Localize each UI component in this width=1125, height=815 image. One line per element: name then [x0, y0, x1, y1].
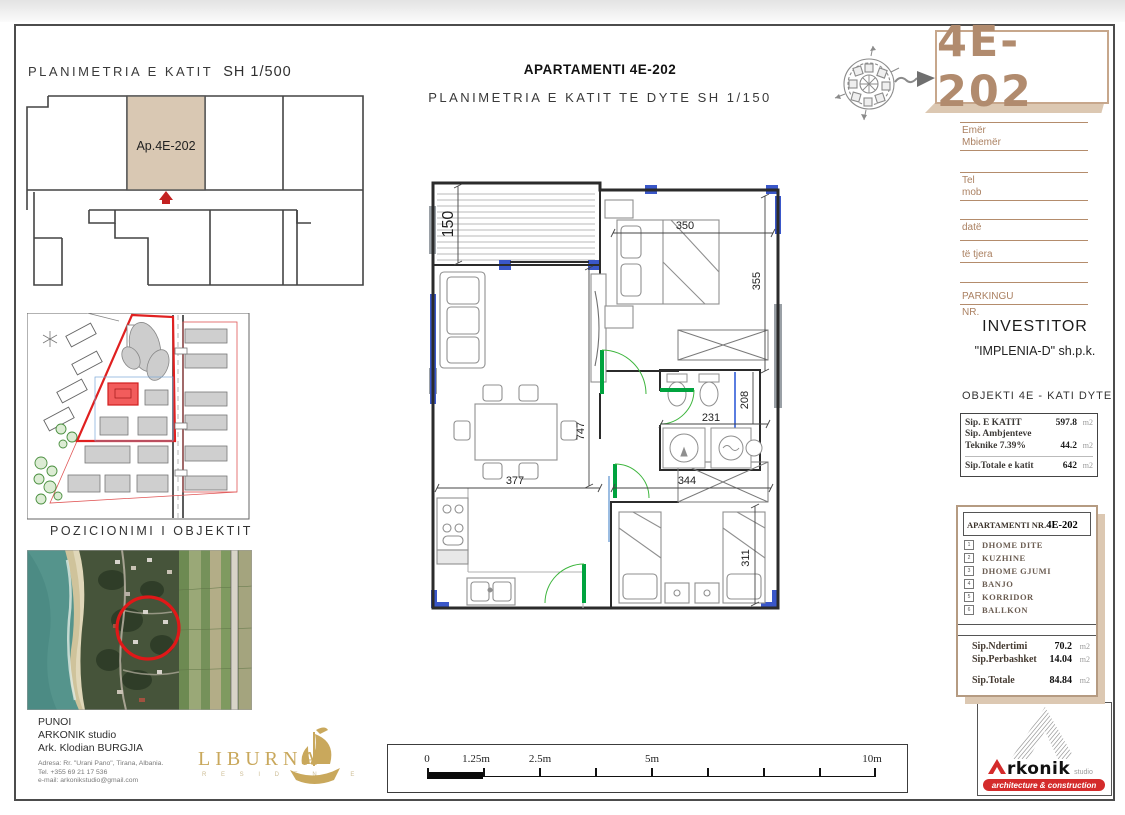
room-number: 4	[964, 579, 974, 589]
room-name: KUZHINE	[982, 553, 1026, 563]
total-value: 70.2	[1055, 641, 1073, 652]
balcony-hatch	[437, 194, 595, 260]
site-plan	[27, 313, 250, 520]
table-row: Sip. E KATIT 597.8 m2	[965, 417, 1093, 429]
key-plan-title: PLANIMETRIA E KATITSH 1/500	[28, 64, 292, 80]
list-item: 4BANJO	[964, 579, 1096, 589]
room-number: 3	[964, 566, 974, 576]
scale-label: 1.25m	[462, 753, 490, 765]
total-unit: m2	[1072, 642, 1090, 651]
apartment-code: 4E-202	[937, 17, 1107, 117]
drawing-sheet: PLANIMETRIA E KATITSH 1/500 Ap.4E-202	[0, 0, 1125, 815]
punoi-label: PUNOI	[38, 716, 143, 729]
table-row: Sip.Totale e katit 642 m2	[965, 460, 1093, 472]
studio-tel: Tel. +355 69 21 17 536	[38, 769, 163, 778]
total-row: Sip.Ndertimi 70.2 m2	[972, 641, 1090, 652]
list-item: 6BALLKON	[964, 605, 1096, 615]
total-row: Sip.Totale 84.84 m2	[972, 675, 1090, 686]
kitchen	[437, 488, 583, 608]
total-unit: m2	[1072, 676, 1090, 685]
arkonik-banner: architecture & construction	[983, 779, 1105, 791]
key-plan-scale: SH 1/500	[223, 64, 291, 80]
floor-plan: 150 350 355 747 231 208 377 344 311	[423, 176, 787, 618]
total-label: Sip.Ndertimi	[972, 641, 1027, 652]
scale-tick	[874, 768, 876, 777]
total-row: Sip.Perbashket 14.04 m2	[972, 654, 1090, 665]
arkonik-logo-box: rkonik studio architecture & constructio…	[977, 702, 1112, 796]
dining-table	[454, 385, 577, 479]
list-item: 5KORRIDOR	[964, 592, 1096, 602]
scale-tick	[707, 768, 709, 777]
room-number: 6	[964, 605, 974, 615]
table-divider	[965, 456, 1093, 457]
scale-label: 10m	[862, 753, 882, 765]
scale-tick	[819, 768, 821, 777]
double-bed	[605, 200, 719, 328]
dim-350: 350	[676, 220, 694, 232]
satellite-image	[27, 550, 252, 710]
scale-tick	[595, 768, 597, 777]
compass-rose-icon	[833, 42, 935, 124]
scale-label: 0	[424, 753, 430, 765]
dim-150: 150	[440, 211, 457, 238]
apartment-panel-heading: APARTAMENTI NR.	[967, 520, 1046, 530]
author-block: PUNOI ARKONIK studio Ark. Klodian BURGJI…	[38, 716, 143, 755]
key-plan-apartment-label: Ap.4E-202	[136, 139, 195, 153]
total-label: Sip.Perbashket	[972, 654, 1037, 665]
total-value: 84.84	[1050, 675, 1073, 686]
investor-heading: INVESTITOR	[955, 318, 1115, 336]
studio-name: ARKONIK studio	[38, 729, 143, 742]
scale-tick	[651, 768, 653, 777]
form-line	[960, 304, 1088, 305]
list-item: 3DHOME GJUMI	[964, 566, 1096, 576]
studio-email: e-mail: arkonikstudio@gmail.com	[38, 777, 163, 786]
room-name: BANJO	[982, 579, 1013, 589]
room-name: KORRIDOR	[982, 592, 1034, 602]
form-label-mob: mob	[962, 187, 981, 198]
scale-bar: 0 1.25m 2.5m 5m 10m	[387, 744, 908, 793]
liburna-ship-icon	[286, 726, 344, 790]
row-value: 597.8	[1056, 418, 1077, 429]
form-line	[960, 219, 1088, 220]
sofa	[440, 272, 485, 368]
row-value: 44.2	[1060, 441, 1077, 452]
form-line	[960, 150, 1088, 151]
total-unit: m2	[1072, 655, 1090, 664]
row-label: Sip. E KATIT	[965, 418, 1022, 429]
scale-label: 5m	[645, 753, 659, 765]
list-item: 1DHOME DITE	[964, 540, 1096, 550]
panel-divider	[958, 624, 1096, 636]
arkonik-triangle-icon	[978, 705, 1109, 759]
table-row: Sip. Ambjenteve	[965, 429, 1093, 440]
table-row: Teknike 7.39% 44.2 m2	[965, 440, 1093, 452]
row-label: Sip.Totale e katit	[965, 461, 1034, 472]
apartment-panel-code: 4E-202	[1046, 520, 1078, 531]
dim-231: 231	[702, 412, 720, 424]
entrance-arrow-icon	[159, 191, 173, 204]
scale-tick	[427, 768, 429, 777]
room-number: 1	[964, 540, 974, 550]
scale-tick	[763, 768, 765, 777]
row-unit: m2	[1077, 440, 1093, 451]
room-name: DHOME GJUMI	[982, 566, 1051, 576]
list-item: 2KUZHINE	[964, 553, 1096, 563]
form-label-tel: Tel	[962, 175, 975, 186]
arkonik-a-icon	[988, 759, 1006, 774]
arkonik-studio-text: studio	[1074, 769, 1093, 776]
investor-name: "IMPLENIA-D" sh.p.k.	[950, 344, 1120, 358]
scale-fill-segment	[427, 772, 483, 779]
dim-311: 311	[740, 549, 752, 567]
scale-label: 2.5m	[529, 753, 551, 765]
dim-747: 747	[575, 422, 587, 440]
row-unit: m2	[1077, 460, 1093, 471]
form-line	[960, 172, 1088, 173]
dim-208: 208	[739, 391, 751, 409]
arkonik-brand-text: rkonik	[1007, 759, 1070, 779]
total-value: 14.04	[1050, 654, 1073, 665]
form-label-date: datë	[962, 222, 981, 233]
form-line	[960, 282, 1088, 283]
room-list: 1DHOME DITE 2KUZHINE 3DHOME GJUMI 4BANJO…	[958, 540, 1096, 615]
form-label-parkingu: PARKINGU	[962, 291, 1014, 302]
studio-contact: Adresa: Rr. "Urani Pano", Tirana, Albani…	[38, 760, 163, 786]
key-plan-title-text: PLANIMETRIA E KATIT	[28, 64, 213, 79]
dim-344: 344	[678, 475, 696, 487]
arkonik-wordmark: rkonik studio	[988, 759, 1093, 779]
form-line	[960, 122, 1088, 123]
dim-377: 377	[506, 475, 524, 487]
site-highlight-building	[108, 383, 138, 405]
sat-farmland	[179, 550, 252, 710]
form-label-tetjera: të tjera	[962, 249, 993, 260]
row-unit: m2	[1077, 417, 1093, 428]
room-name: DHOME DITE	[982, 540, 1043, 550]
compass-pointer	[895, 71, 935, 87]
site-caption: POZICIONIMI I OBJEKTIT	[50, 524, 253, 538]
row-value: 642	[1063, 461, 1077, 472]
page-subtitle: PLANIMETRIA E KATIT TE DYTE SH 1/150	[400, 90, 800, 105]
form-label-mbiemer: Mbiemër	[962, 128, 1001, 148]
form-label-nr: NR.	[962, 307, 979, 318]
form-line	[960, 240, 1088, 241]
row-label: Teknike 7.39%	[965, 441, 1026, 452]
architect-name: Ark. Klodian BURGJIA	[38, 742, 143, 755]
apartment-summary-panel: APARTAMENTI NR.4E-202 1DHOME DITE 2KUZHI…	[956, 505, 1098, 697]
dim-355: 355	[751, 272, 763, 290]
total-label: Sip.Totale	[972, 675, 1015, 686]
apartment-code-box: 4E-202	[935, 30, 1109, 104]
row-label: Sip. Ambjenteve	[965, 429, 1032, 440]
key-plan-drawing: Ap.4E-202	[14, 88, 384, 288]
floor-table-heading: OBJEKTI 4E - KATI DYTE	[962, 390, 1112, 402]
form-line	[960, 200, 1088, 201]
form-line	[960, 262, 1088, 263]
page-title: APARTAMENTI 4E-202	[430, 62, 770, 77]
room-number: 5	[964, 592, 974, 602]
floor-area-table: Sip. E KATIT 597.8 m2 Sip. Ambjenteve Te…	[960, 413, 1098, 477]
room-name: BALLKON	[982, 605, 1028, 615]
studio-address: Adresa: Rr. "Urani Pano", Tirana, Albani…	[38, 760, 163, 769]
scale-tick	[483, 768, 485, 777]
room-number: 2	[964, 553, 974, 563]
scale-tick	[539, 768, 541, 777]
apartment-panel-header: APARTAMENTI NR.4E-202	[963, 512, 1091, 536]
